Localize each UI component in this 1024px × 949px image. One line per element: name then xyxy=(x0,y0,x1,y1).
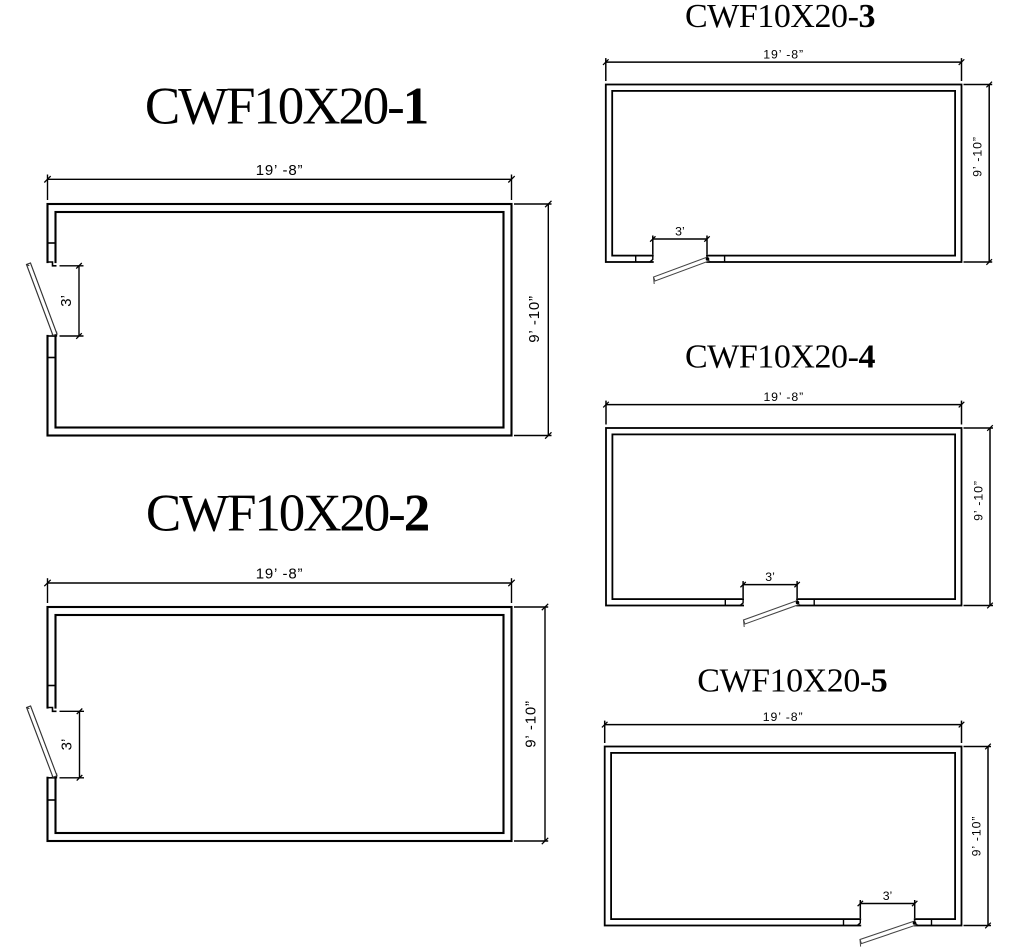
svg-text:3’: 3’ xyxy=(883,889,893,903)
svg-text:CWF10X20-4: CWF10X20-4 xyxy=(685,338,876,375)
svg-text:CWF10X20-3: CWF10X20-3 xyxy=(685,0,875,35)
svg-text:9’ -10”: 9’ -10” xyxy=(971,136,985,177)
svg-text:9’ -10”: 9’ -10” xyxy=(526,295,543,343)
svg-text:9’ -10”: 9’ -10” xyxy=(523,700,540,748)
svg-text:3’: 3’ xyxy=(58,295,75,307)
svg-text:19’ -8”: 19’ -8” xyxy=(256,566,304,583)
svg-text:CWF10X20-2: CWF10X20-2 xyxy=(146,484,429,542)
svg-text:3’: 3’ xyxy=(765,570,775,584)
svg-text:19’ -8”: 19’ -8” xyxy=(763,710,804,724)
svg-text:3’: 3’ xyxy=(675,224,685,238)
svg-text:9’ -10”: 9’ -10” xyxy=(970,816,984,857)
svg-text:19’ -8”: 19’ -8” xyxy=(763,390,804,404)
svg-text:9’ -10”: 9’ -10” xyxy=(972,480,986,521)
svg-text:19’ -8”: 19’ -8” xyxy=(256,162,304,179)
svg-text:3’: 3’ xyxy=(59,739,76,751)
svg-text:CWF10X20-1: CWF10X20-1 xyxy=(145,78,427,136)
svg-text:19’ -8”: 19’ -8” xyxy=(763,48,804,62)
svg-text:CWF10X20-5: CWF10X20-5 xyxy=(697,662,887,699)
